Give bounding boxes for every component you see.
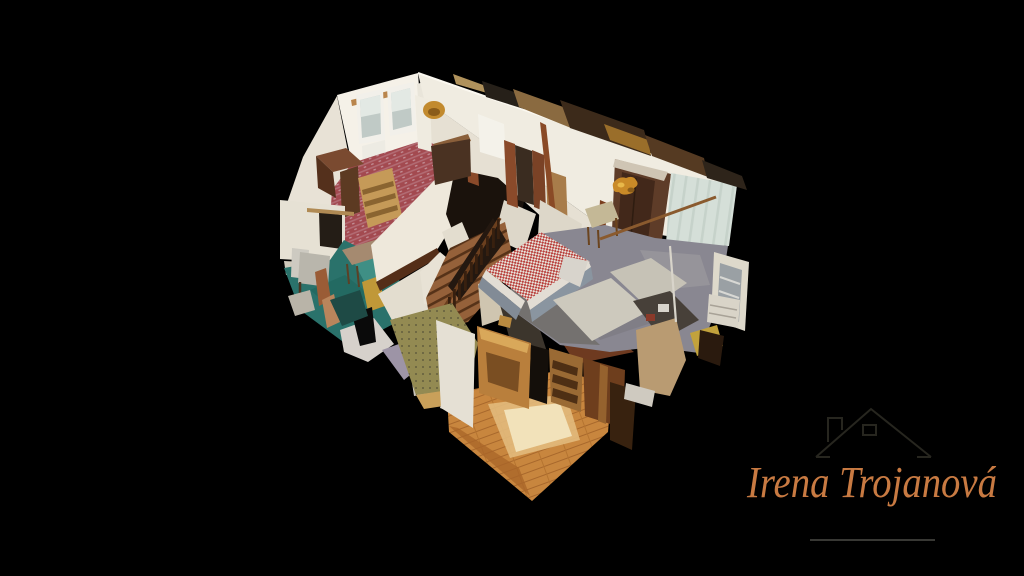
svg-text:Irena Trojanová: Irena Trojanová (746, 458, 997, 507)
